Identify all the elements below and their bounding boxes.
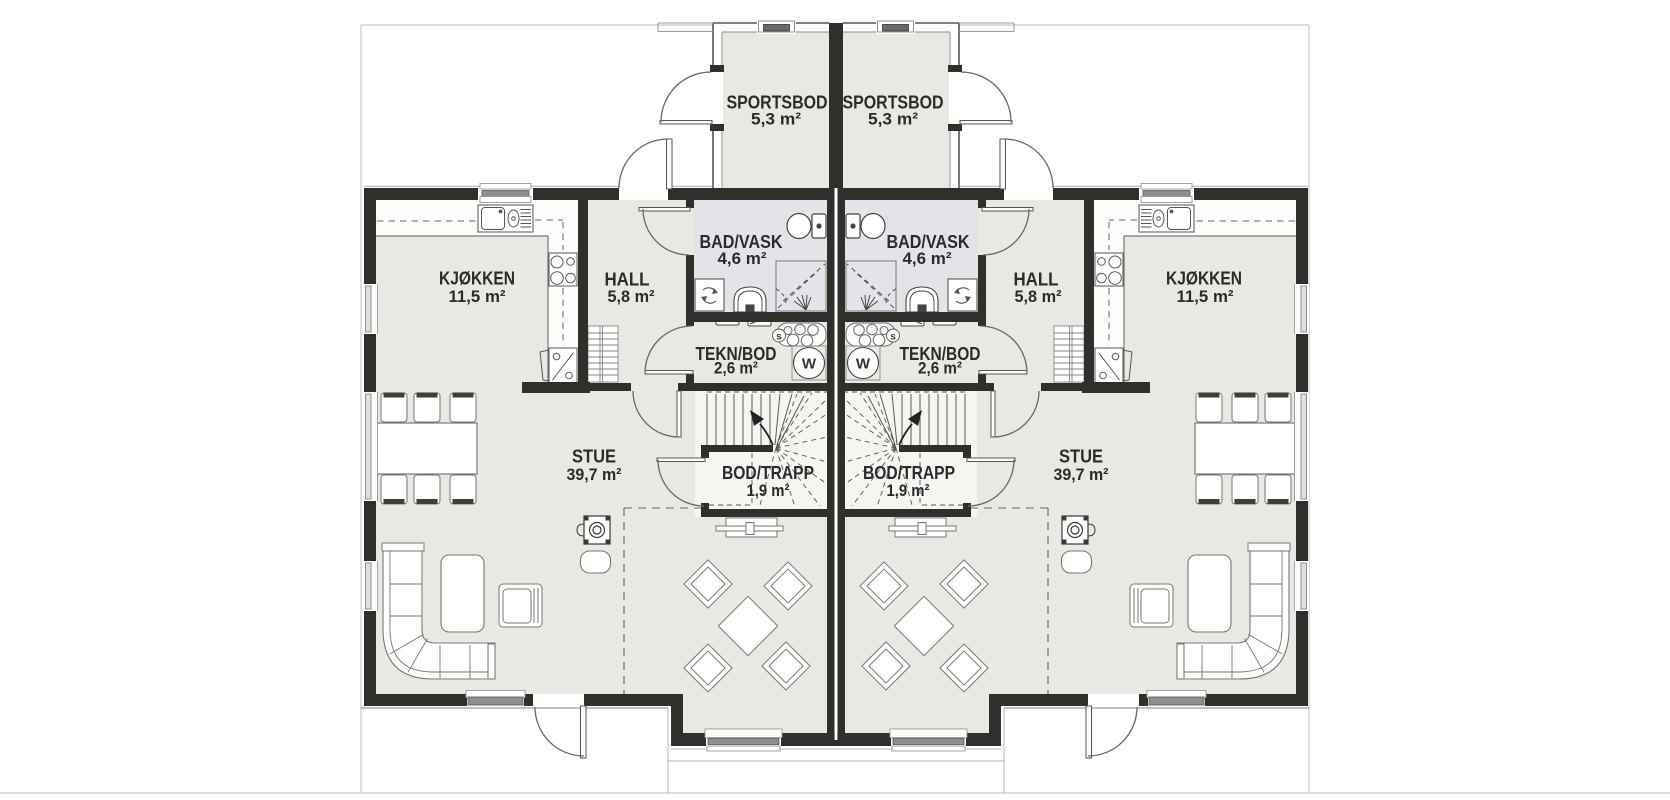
svg-text:11,5 m²: 11,5 m² <box>1177 287 1234 306</box>
svg-text:5,8 m²: 5,8 m² <box>608 287 655 306</box>
svg-text:5,3 m²: 5,3 m² <box>868 110 918 129</box>
svg-text:KJØKKEN: KJØKKEN <box>439 269 515 289</box>
svg-text:W: W <box>802 356 817 373</box>
svg-text:1,9 m²: 1,9 m² <box>887 481 930 500</box>
svg-text:5,8 m²: 5,8 m² <box>1015 287 1062 306</box>
svg-text:4,6 m²: 4,6 m² <box>718 249 767 268</box>
svg-text:STUE: STUE <box>572 447 616 467</box>
svg-text:11,5 m²: 11,5 m² <box>449 287 506 306</box>
svg-text:s: s <box>890 332 896 343</box>
svg-text:BOD/TRAPP: BOD/TRAPP <box>722 463 814 483</box>
svg-text:W: W <box>856 356 871 373</box>
svg-text:BOD/TRAPP: BOD/TRAPP <box>863 463 955 483</box>
svg-text:4,6 m²: 4,6 m² <box>903 249 952 268</box>
svg-text:s: s <box>776 332 782 343</box>
svg-text:2,6 m²: 2,6 m² <box>918 359 962 378</box>
svg-text:STUE: STUE <box>1059 447 1103 467</box>
svg-text:5,3 m²: 5,3 m² <box>751 110 801 129</box>
svg-text:39,7 m²: 39,7 m² <box>1054 465 1109 484</box>
svg-text:1,9 m²: 1,9 m² <box>747 481 790 500</box>
svg-text:KJØKKEN: KJØKKEN <box>1166 269 1242 289</box>
svg-text:2,6 m²: 2,6 m² <box>714 359 758 378</box>
svg-text:39,7 m²: 39,7 m² <box>567 465 622 484</box>
